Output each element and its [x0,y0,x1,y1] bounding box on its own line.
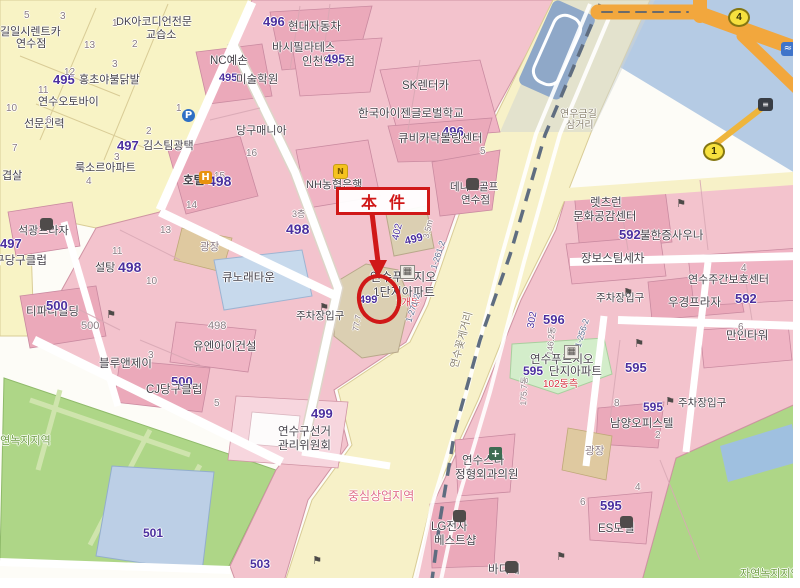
apartment1-building [334,264,410,358]
annotation-label: 本件 [349,189,417,213]
base-map [0,0,800,588]
map-canvas[interactable]: 길일시렌트카연수점DK아코디언전문교습소495홍초야불닭발연수오토바이선문전력겹… [0,0,800,588]
page-margin [0,578,800,588]
page-margin [793,0,800,588]
annotation-label-box: 本件 [336,187,430,215]
blue-parcel [96,466,214,572]
